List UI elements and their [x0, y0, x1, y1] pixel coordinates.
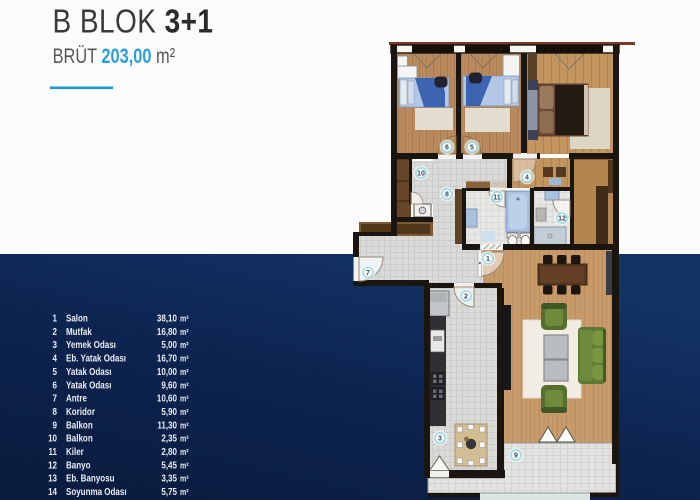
- svg-text:5,45: 5,45: [161, 459, 177, 470]
- svg-text:Mutfak: Mutfak: [66, 326, 93, 337]
- svg-text:7: 7: [53, 393, 57, 404]
- svg-text:6: 6: [53, 379, 57, 390]
- svg-text:3: 3: [53, 339, 57, 350]
- svg-text:16,70: 16,70: [157, 353, 177, 364]
- svg-text:Yatak Odası: Yatak Odası: [66, 379, 111, 390]
- svg-text:5: 5: [470, 145, 474, 152]
- svg-text:3,35: 3,35: [161, 473, 177, 484]
- svg-text:Salon: Salon: [66, 313, 88, 324]
- svg-text:Eb. Banyosu: Eb. Banyosu: [66, 473, 115, 484]
- svg-text:B BLOK 3+1: B BLOK 3+1: [53, 3, 214, 40]
- svg-text:2: 2: [53, 326, 57, 337]
- svg-text:2,35: 2,35: [161, 433, 177, 444]
- svg-text:10,60: 10,60: [157, 393, 177, 404]
- svg-text:m²: m²: [180, 434, 189, 444]
- svg-text:m²: m²: [180, 314, 189, 324]
- svg-text:11: 11: [493, 195, 501, 202]
- svg-text:9,60: 9,60: [161, 379, 177, 390]
- svg-text:Balkon: Balkon: [66, 433, 93, 444]
- svg-text:BRÜT 203,00 m²: BRÜT 203,00 m²: [53, 44, 176, 67]
- svg-text:38,10: 38,10: [157, 313, 177, 324]
- svg-text:9: 9: [53, 419, 57, 430]
- svg-text:8: 8: [53, 406, 57, 417]
- svg-text:m²: m²: [180, 367, 189, 377]
- svg-text:Banyo: Banyo: [66, 459, 91, 470]
- svg-text:m²: m²: [180, 474, 189, 484]
- svg-text:14: 14: [48, 486, 58, 497]
- svg-text:13: 13: [48, 473, 57, 484]
- svg-text:2,80: 2,80: [161, 446, 177, 457]
- svg-text:Eb. Yatak Odası: Eb. Yatak Odası: [66, 353, 126, 364]
- svg-text:12: 12: [558, 216, 566, 223]
- svg-text:m²: m²: [180, 461, 189, 471]
- svg-text:11,30: 11,30: [157, 419, 177, 430]
- svg-text:9: 9: [514, 453, 518, 460]
- svg-text:m²: m²: [180, 327, 189, 337]
- svg-text:16,80: 16,80: [157, 326, 177, 337]
- svg-text:m²: m²: [180, 354, 189, 364]
- svg-text:11: 11: [49, 446, 57, 457]
- svg-text:m²: m²: [180, 447, 189, 457]
- svg-text:m²: m²: [180, 420, 189, 430]
- svg-text:Koridor: Koridor: [66, 406, 95, 417]
- svg-text:6: 6: [445, 145, 449, 152]
- svg-text:10,00: 10,00: [157, 366, 177, 377]
- svg-text:5: 5: [53, 366, 57, 377]
- svg-text:Balkon: Balkon: [66, 419, 93, 430]
- svg-text:1: 1: [53, 313, 57, 324]
- svg-text:5,00: 5,00: [161, 339, 177, 350]
- svg-text:m²: m²: [180, 394, 189, 404]
- svg-text:2: 2: [464, 294, 468, 301]
- svg-text:1: 1: [486, 256, 490, 263]
- svg-text:Antre: Antre: [66, 393, 87, 404]
- svg-text:m²: m²: [180, 407, 189, 417]
- svg-text:4: 4: [53, 353, 58, 364]
- svg-text:12: 12: [48, 459, 57, 470]
- svg-text:Kiler: Kiler: [66, 446, 84, 457]
- svg-text:Soyunma Odası: Soyunma Odası: [66, 486, 127, 497]
- svg-text:Yatak Odası: Yatak Odası: [66, 366, 111, 377]
- svg-text:5,90: 5,90: [161, 406, 177, 417]
- svg-text:7: 7: [366, 270, 370, 277]
- svg-text:5,75: 5,75: [161, 486, 177, 497]
- svg-text:4: 4: [525, 175, 529, 182]
- svg-text:10: 10: [417, 171, 425, 178]
- svg-text:m²: m²: [180, 340, 189, 350]
- svg-text:3: 3: [438, 436, 442, 443]
- svg-text:10: 10: [48, 433, 57, 444]
- svg-text:m²: m²: [180, 487, 189, 497]
- svg-text:8: 8: [445, 192, 449, 199]
- svg-text:Yemek Odası: Yemek Odası: [66, 339, 116, 350]
- svg-text:m²: m²: [180, 380, 189, 390]
